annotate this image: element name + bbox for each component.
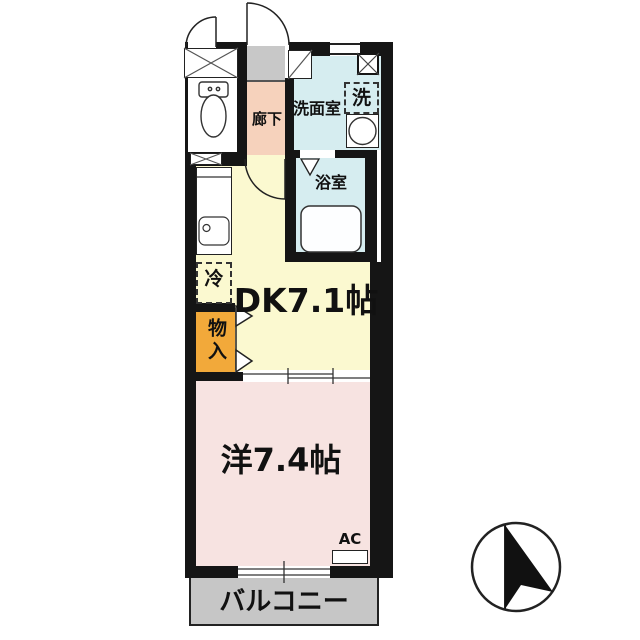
floorplan-canvas: 廊下 洗面室 洗 浴室 DK7.1帖 冷 物入 洋7.4帖 AC バルコニー [0,0,640,640]
window-top [330,43,360,55]
ac-unit-box [332,550,368,564]
bathroom-label: 浴室 [300,172,362,194]
washer-label: 洗 [344,84,379,112]
wall-closet-bottom [189,372,243,381]
wall-left-outer [185,152,196,578]
north-arrow-icon [472,523,560,611]
kitchen-counter [196,167,232,255]
genkan-hall-step-line [247,80,285,82]
entrance-door-arc-icon [247,3,289,45]
genkan-floor [247,46,285,82]
pipe-space-box [357,53,379,75]
wall-bath-left [285,150,296,262]
hallway-label: 廊下 [244,106,290,132]
washroom-label: 洗面室 [288,98,346,120]
toilet-icon [199,82,228,137]
meter-box-door-arc-icon [186,17,216,47]
wall-bottom-left [185,566,238,578]
sliding-door-band [243,370,370,382]
wall-bottom-right [330,566,393,578]
ac-label: AC [330,530,370,549]
refrigerator-label: 冷 [196,264,232,294]
western-room-label: 洋7.4帖 [196,440,366,480]
balcony-label: バルコニー [189,585,379,618]
window-toilet-wall [190,153,222,165]
dk-label: DK7.1帖 [226,280,386,320]
washer-pan [346,114,379,148]
wall-toilet-right [237,45,247,152]
wall-gap-right [377,150,381,262]
washroom-door-panel [288,50,312,79]
wall-bath-right [365,150,377,262]
wall-bath-bottom [285,252,381,262]
window-band-bottom [238,566,330,578]
meter-box [184,48,238,78]
closet-label: 物入 [196,312,235,370]
